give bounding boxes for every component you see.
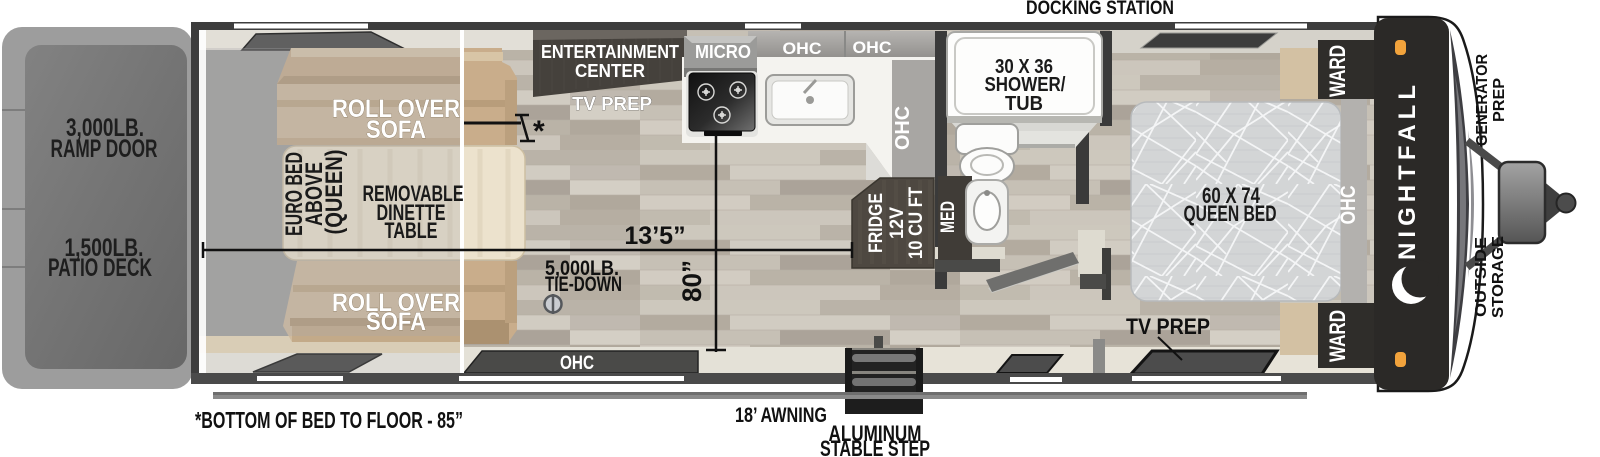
svg-text:13’5”: 13’5” <box>624 222 685 250</box>
svg-text:RAMP DOOR: RAMP DOOR <box>51 135 158 163</box>
svg-text:OHC: OHC <box>853 38 892 57</box>
svg-text:80”: 80” <box>677 260 707 302</box>
svg-text:CENTER: CENTER <box>575 61 645 81</box>
svg-text:SOFA: SOFA <box>366 116 426 144</box>
svg-text:PATIO DECK: PATIO DECK <box>48 254 152 282</box>
svg-text:12V: 12V <box>887 207 908 239</box>
svg-text:TV PREP: TV PREP <box>572 94 652 114</box>
svg-text:WARD: WARD <box>1325 310 1350 362</box>
svg-text:STABLE STEP: STABLE STEP <box>820 436 930 457</box>
svg-text:MICRO: MICRO <box>695 42 751 62</box>
svg-text:QUEEN BED: QUEEN BED <box>1184 201 1277 226</box>
svg-text:FRIDGE: FRIDGE <box>866 193 887 253</box>
svg-text:TABLE: TABLE <box>385 218 438 243</box>
svg-text:MED: MED <box>938 201 959 233</box>
svg-text:PREP: PREP <box>1491 78 1508 122</box>
svg-text:DOCKING STATION: DOCKING STATION <box>1026 0 1174 19</box>
svg-text:TV PREP: TV PREP <box>1126 314 1210 339</box>
svg-text:OHC: OHC <box>560 353 594 374</box>
svg-text:TUB: TUB <box>1005 93 1043 115</box>
svg-text:GENERATOR: GENERATOR <box>1474 54 1491 146</box>
svg-text:18’ AWNING: 18’ AWNING <box>735 404 827 427</box>
svg-text:*: * <box>533 115 545 148</box>
svg-text:(QUEEN): (QUEEN) <box>321 150 348 235</box>
svg-text:OHC: OHC <box>783 39 822 58</box>
svg-text:STORAGE: STORAGE <box>1490 236 1507 318</box>
svg-text:SOFA: SOFA <box>366 308 426 336</box>
svg-text:TIE-DOWN: TIE-DOWN <box>545 273 622 296</box>
svg-text:WARD: WARD <box>1325 45 1350 97</box>
svg-text:OHC: OHC <box>892 106 914 150</box>
svg-text:ENTERTAINMENT: ENTERTAINMENT <box>541 42 679 62</box>
svg-text:NIGHTFALL: NIGHTFALL <box>1394 80 1421 260</box>
svg-text:OHC: OHC <box>1337 186 1360 225</box>
svg-text:OUTSIDE: OUTSIDE <box>1473 237 1490 317</box>
svg-text:10 CU FT: 10 CU FT <box>906 187 927 259</box>
svg-text:*BOTTOM OF BED TO FLOOR - 85”: *BOTTOM OF BED TO FLOOR - 85” <box>195 407 463 433</box>
